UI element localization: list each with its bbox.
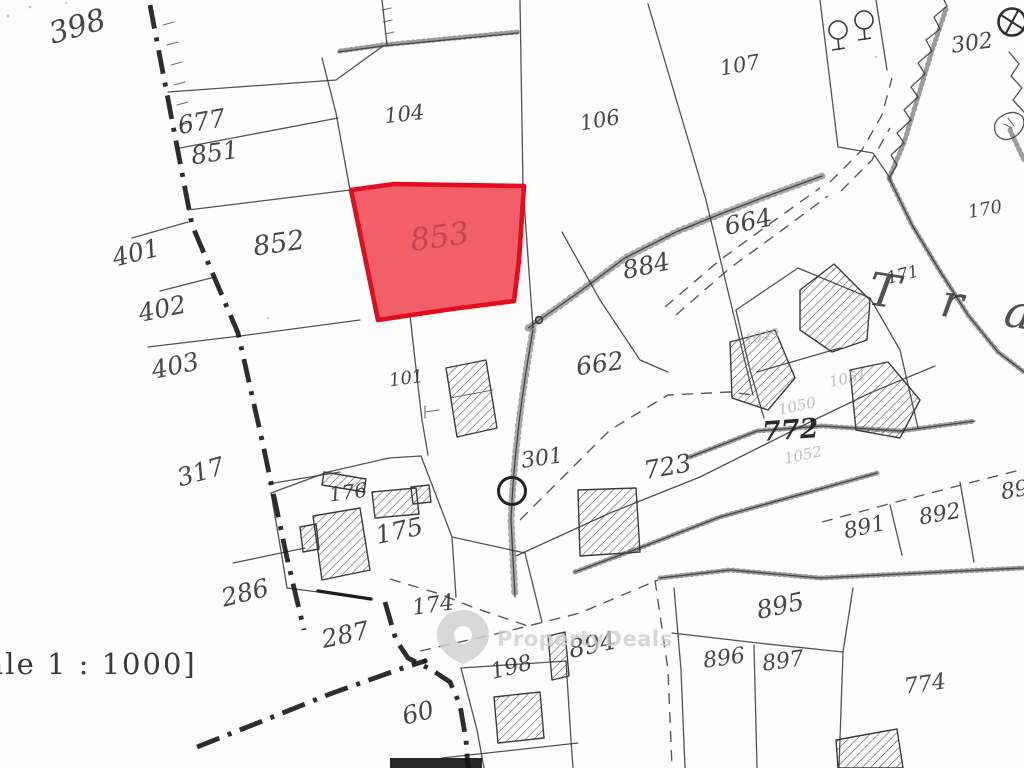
parcel-label-677: 677 — [176, 103, 228, 140]
parcel-label-891: 891 — [842, 511, 888, 544]
parcel-label-662: 662 — [574, 346, 625, 381]
parcel-label-852: 852 — [251, 225, 306, 263]
parcel-label-104: 104 — [383, 100, 425, 128]
parcel-label-897: 897 — [761, 646, 806, 677]
map-pin-icon — [437, 610, 489, 664]
parcel-label-774: 774 — [903, 669, 948, 700]
tree-icon — [855, 11, 873, 40]
parcel-label-89: 89 — [999, 476, 1024, 505]
watermark-text: PropertyDeals — [497, 627, 673, 651]
parcel-label-170: 170 — [966, 196, 1003, 223]
parcel-label-302: 302 — [950, 28, 995, 59]
parcel-label-107: 107 — [718, 50, 762, 81]
cliff-marks — [889, 0, 1024, 178]
parcel-label-287: 287 — [318, 616, 372, 655]
parcel-label-723: 723 — [642, 448, 694, 485]
parcel-label-851: 851 — [189, 135, 240, 170]
parcel-label-301: 301 — [520, 443, 565, 474]
parcel-label-398: 398 — [45, 2, 110, 51]
parcel-label-317: 317 — [174, 451, 228, 492]
parcel-label-402: 402 — [135, 290, 189, 328]
parcel-label-403: 403 — [148, 347, 202, 385]
parcel-label-892: 892 — [917, 499, 963, 531]
parcel-label-176: 176 — [327, 477, 368, 506]
parcel-label-60: 60 — [399, 695, 437, 731]
parcel-label-286: 286 — [217, 573, 271, 613]
buildings — [300, 264, 920, 768]
tree-icon — [829, 21, 847, 50]
parcel-label-895: 895 — [754, 587, 807, 625]
cadastral-map: 3986778511041061073024018528534024036648… — [0, 0, 1024, 768]
survey-circle-icon — [999, 9, 1024, 36]
parcel-label-884: 884 — [620, 247, 673, 285]
parcel-label-101: 101 — [388, 366, 425, 392]
cadastral-map-page: 3986778511041061073024018528534024036648… — [0, 0, 1024, 768]
parcel-label-896: 896 — [702, 643, 747, 674]
parcel-label-106: 106 — [578, 105, 622, 136]
scale-label: ale 1 : 1000] — [0, 647, 197, 681]
parcel-label-401: 401 — [108, 233, 162, 273]
parcel-label-198: 198 — [488, 650, 535, 684]
parcel-label-772: 772 — [761, 413, 819, 448]
